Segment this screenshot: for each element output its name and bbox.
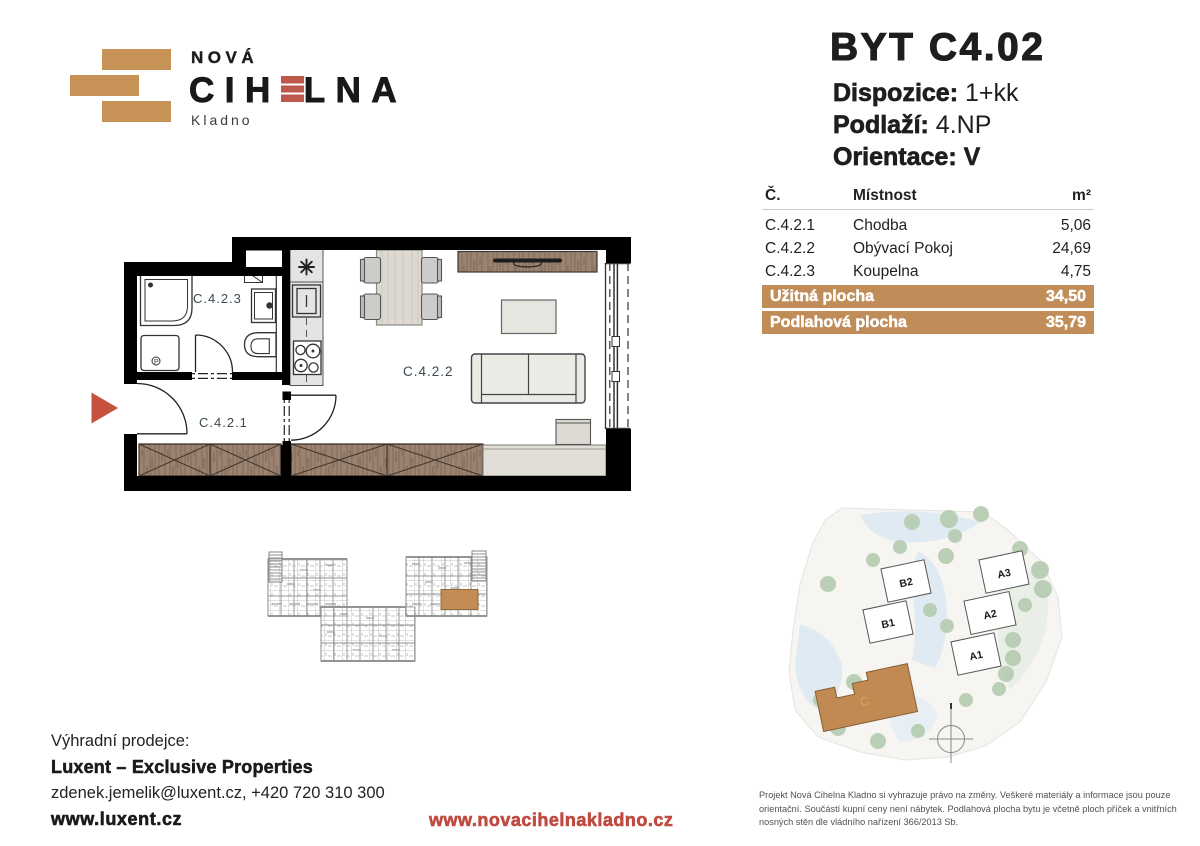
svg-text:C.4.2.2: C.4.2.2 — [403, 364, 454, 379]
svg-text:C.4.2.3: C.4.2.3 — [193, 291, 242, 306]
svg-text:C.4.2.1: C.4.2.1 — [199, 415, 248, 430]
svg-text:P: P — [154, 359, 159, 366]
